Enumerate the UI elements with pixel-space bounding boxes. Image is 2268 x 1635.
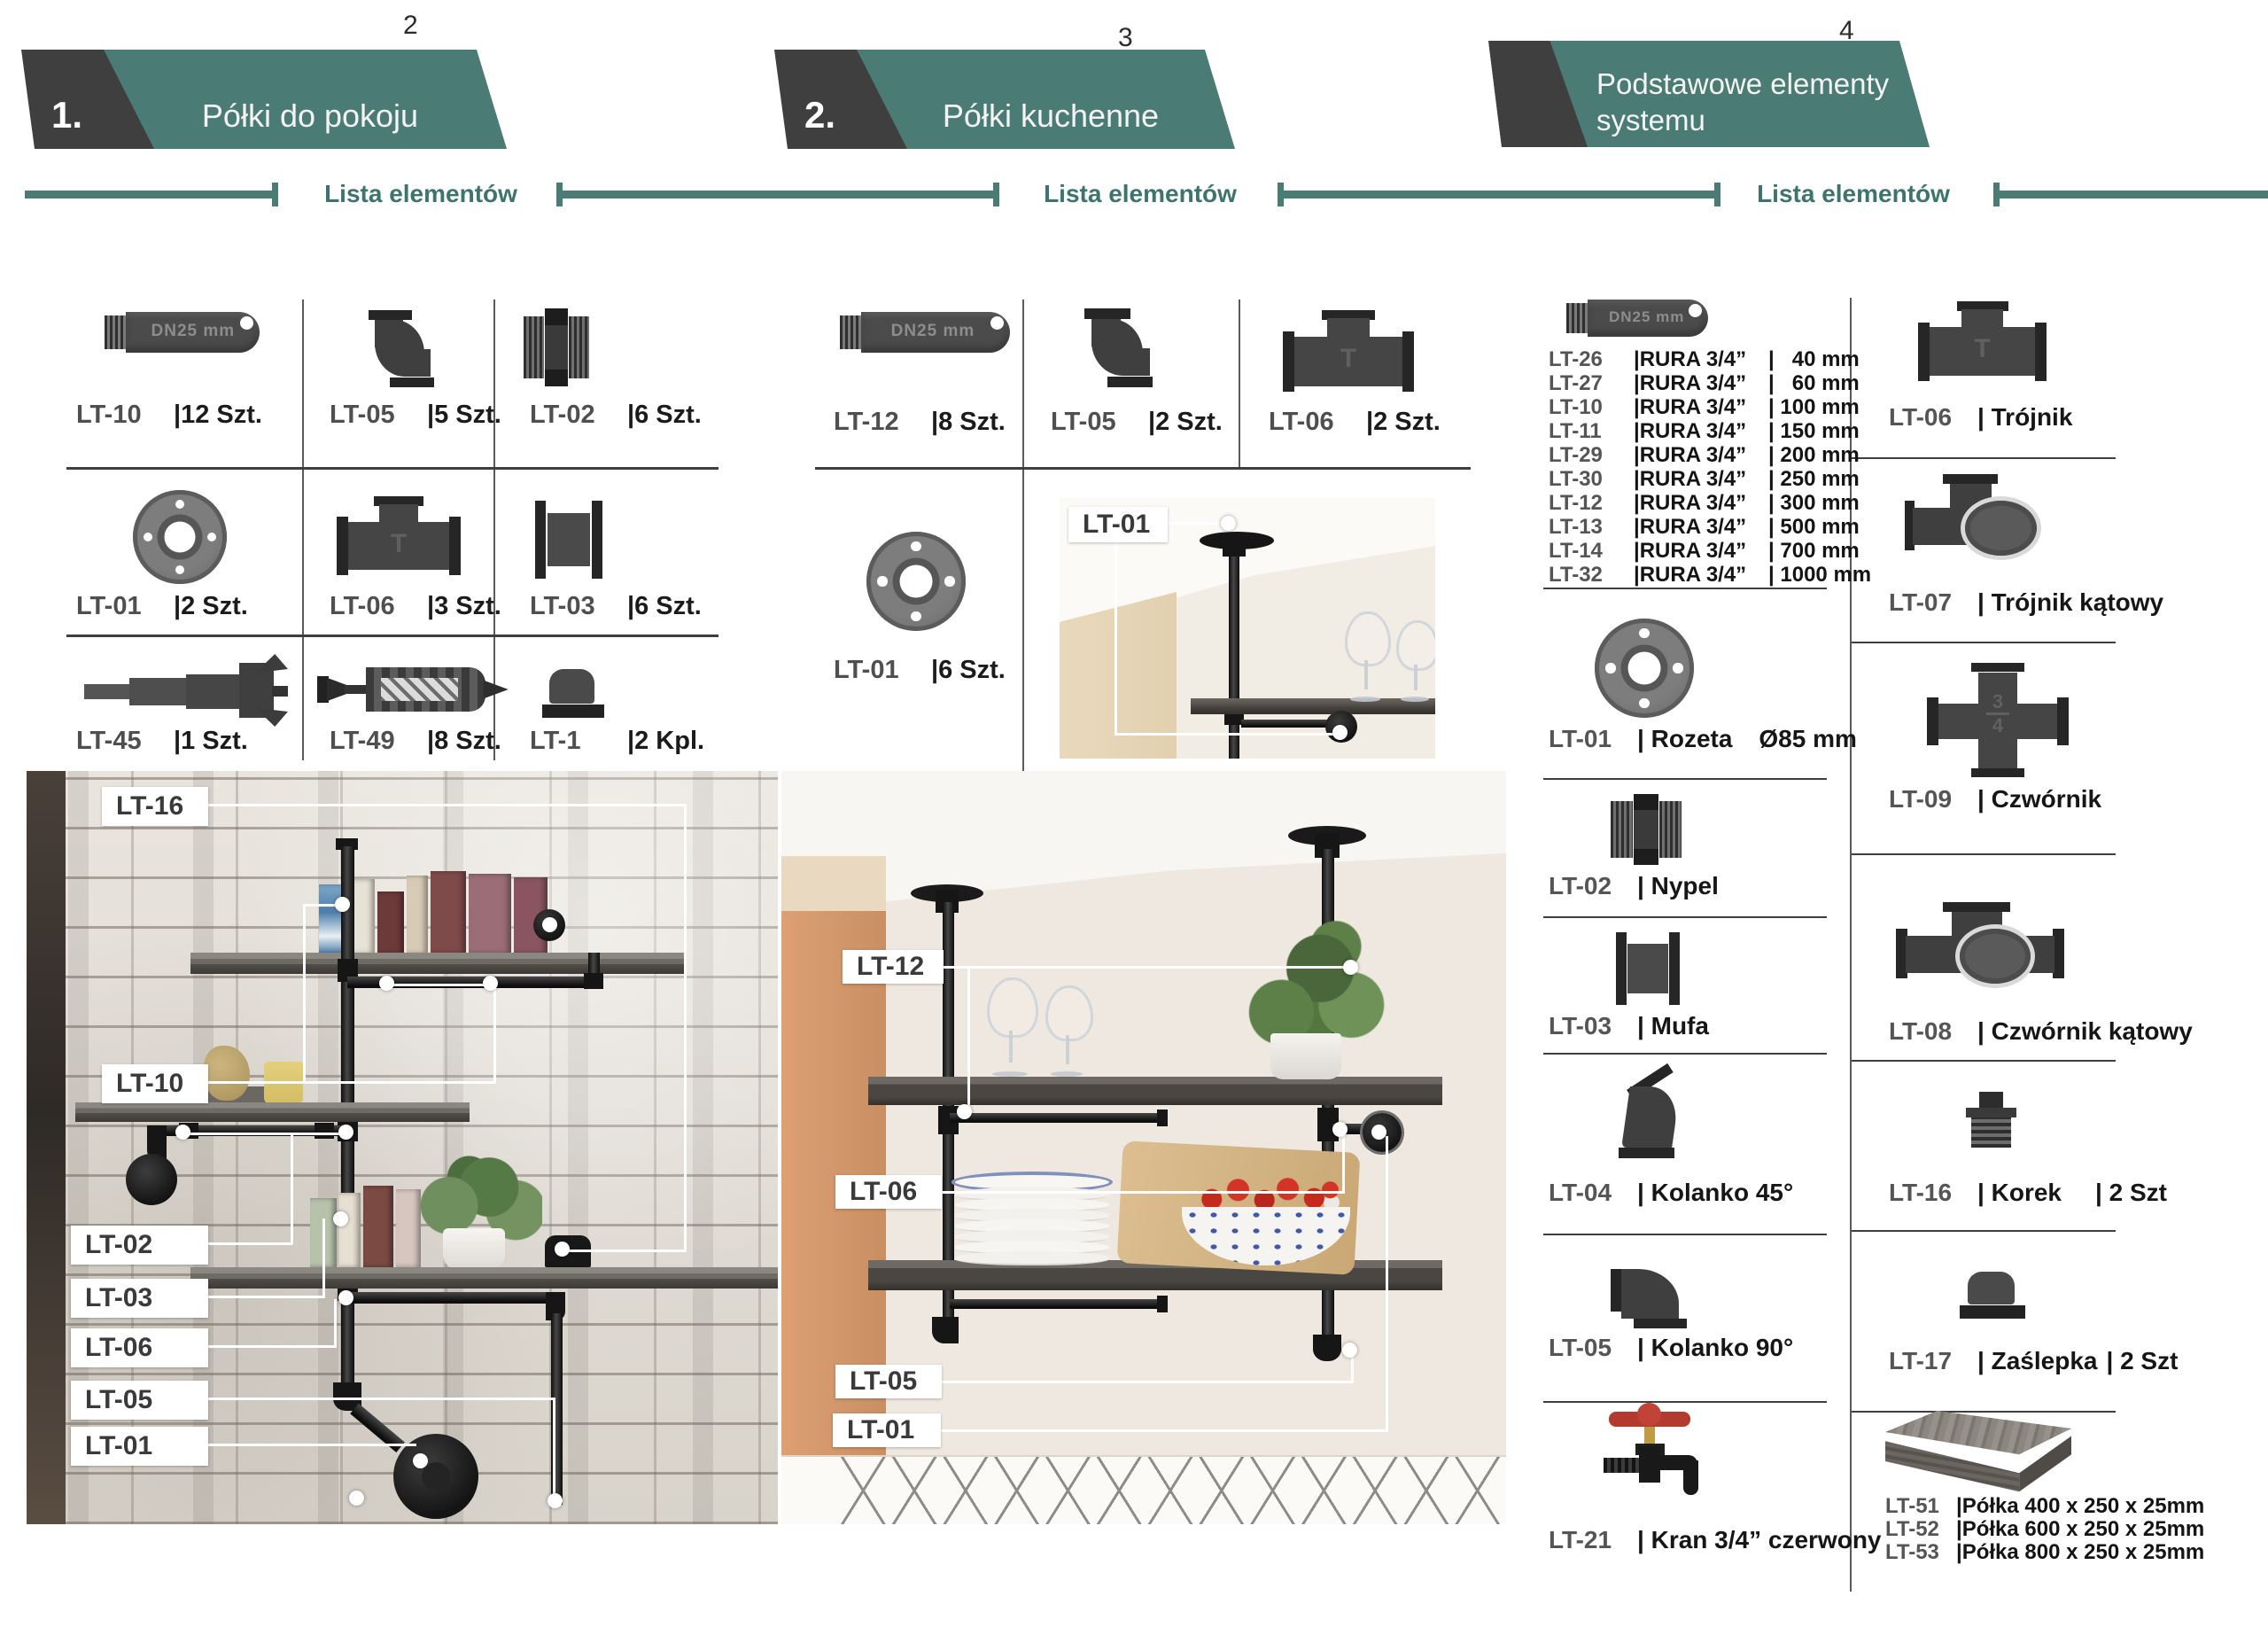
nypel-icon (1611, 794, 1682, 865)
pipe-icon: DN25 mm (840, 312, 1010, 353)
tab1-title: Półki do pokoju (154, 97, 466, 135)
czwornik-icon: 34 (1927, 660, 2069, 780)
callout-LT-05: LT-05 (835, 1365, 942, 1398)
catalog-page: 1. Półki do pokoju 2 2. Półki kuchenne 3… (0, 0, 2268, 1635)
pipe-icon: DN25 mm (105, 312, 260, 353)
tab3-title-line2: systemu (1596, 104, 1705, 136)
callout-LT-01: LT-01 (833, 1413, 941, 1447)
nypel-icon (524, 308, 589, 386)
tee-icon: T (1283, 310, 1414, 399)
part-label: LT-06|2 Szt. (1269, 408, 1441, 437)
korek-plug-icon (1953, 1092, 2029, 1152)
list-header-2: Lista elementów (1038, 180, 1242, 208)
divider-bar (1278, 191, 1720, 199)
gold-sculpture (204, 1046, 250, 1101)
divider-tick (272, 183, 278, 206)
divider-bar (1993, 191, 2268, 199)
pipe-badge-text: DN25 mm (151, 322, 236, 341)
inset-part-callout: LT-01 (1068, 507, 1168, 542)
part-label: LT-02|6 Szt. (530, 401, 702, 430)
divider-tick (1714, 183, 1720, 206)
rozeta-icon (133, 490, 227, 584)
list-header-3: Lista elementów (1751, 180, 1955, 208)
callout-LT-16: LT-16 (102, 787, 208, 826)
shelf-top (190, 953, 687, 974)
callout-LT-03: LT-03 (71, 1279, 208, 1318)
callout-LT-05: LT-05 (71, 1381, 208, 1420)
plate-stack (951, 1172, 1113, 1264)
korek-icon (542, 666, 604, 718)
tee-icon: T (337, 496, 461, 582)
part-label: LT-12|8 Szt. (834, 408, 1006, 437)
callout-LT-10: LT-10 (102, 1064, 208, 1103)
drill-bit-icon (84, 654, 288, 727)
tab2-title: Półki kuchenne (907, 97, 1194, 135)
tab1-number-box (21, 50, 154, 149)
callout-LT-02: LT-02 (71, 1226, 208, 1265)
inset-flange-hub (1223, 539, 1246, 557)
zaslepka-icon (1960, 1269, 2025, 1319)
part-label: LT-01|6 Szt. (834, 656, 1006, 685)
tab-polki-do-pokoju: 1. Półki do pokoju (21, 50, 507, 149)
herringbone-tiles (835, 1457, 1506, 1524)
part-label: LT-1|2 Kpl. (530, 727, 704, 756)
plant-pot (443, 1228, 505, 1269)
elbow-90-icon (361, 303, 439, 393)
tab3-title-line1: Podstawowe elementy (1596, 67, 1889, 100)
grid-line (1239, 300, 1240, 467)
plant-pot (1270, 1033, 1341, 1079)
mufa-icon (1616, 932, 1680, 1005)
shelf-bottom (190, 1267, 778, 1289)
tab2-number-box (774, 50, 907, 149)
grid-line (66, 635, 718, 637)
divider-bar (556, 191, 999, 199)
rozeta-icon (866, 532, 966, 631)
shelf-board-image (1885, 1411, 2071, 1495)
door-frame-edge (27, 771, 66, 1524)
wine-glass (1045, 985, 1088, 1077)
tab3-number-box (1488, 41, 1588, 147)
part-label: LT-45|1 Szt. (76, 727, 248, 756)
callout-LT-01: LT-01 (71, 1427, 208, 1466)
czwornik-katowy-icon (1896, 902, 2064, 991)
list-header-1: Lista elementów (319, 180, 523, 208)
part-label: LT-10|12 Szt. (76, 401, 262, 430)
part-label: LT-49|8 Szt. (330, 727, 501, 756)
tee-icon: T (1918, 301, 2047, 388)
wine-glass (1345, 611, 1386, 702)
part-label: LT-03|6 Szt. (530, 592, 702, 621)
grid-line (1022, 300, 1024, 808)
inset-bracket-pipe (1241, 720, 1337, 728)
wine-glass (987, 977, 1033, 1077)
page-number-4: 4 (1839, 16, 1854, 46)
rozeta-icon (1595, 619, 1694, 718)
mufa-icon (535, 501, 602, 579)
part-label: LT-06|3 Szt. (330, 592, 501, 621)
trojnik-katowy-icon (1905, 474, 2042, 563)
page-number-2: 2 (403, 11, 418, 41)
tab-polki-kuchenne: 2. Półki kuchenne (774, 50, 1235, 149)
divider-tick (993, 183, 999, 206)
grid-line (302, 300, 304, 760)
tab2-number: 2. (804, 94, 835, 136)
part-label: LT-01|2 Szt. (76, 592, 248, 621)
elbow-90-icon (1605, 1248, 1698, 1336)
elbow-45-icon (1605, 1072, 1698, 1172)
part-label: LT-05|2 Szt. (1051, 408, 1223, 437)
elbow-90-icon (1076, 301, 1158, 393)
wine-glass (1396, 620, 1433, 702)
kitchen-shelf-top (868, 1077, 1442, 1105)
callout-LT-06: LT-06 (71, 1328, 208, 1367)
part-label: LT-05|5 Szt. (330, 401, 501, 430)
inset-pipe (1229, 548, 1239, 759)
books-row (319, 870, 664, 954)
inset-photo-kitchen-flange: LT-01 (1060, 498, 1435, 759)
screw-dowel-icon (317, 660, 510, 719)
divider-bar (25, 191, 278, 199)
pipe-icon: DN25 mm (1566, 300, 1708, 337)
callout-LT-06: LT-06 (835, 1175, 942, 1209)
shelf-middle (75, 1102, 470, 1122)
page-number-3: 3 (1118, 23, 1133, 53)
tab3-title: Podstawowe elementy systemu (1596, 66, 1903, 138)
photo-room-shelves: LT-16 LT-10 LT-02 LT-03 LT-06 LT-05 LT-0… (27, 771, 778, 1524)
photo-kitchen-shelves: LT-12 LT-06 LT-05 LT-01 (781, 771, 1506, 1524)
tab-podstawowe-elementy: Podstawowe elementy systemu (1488, 41, 1930, 147)
ceiling (781, 771, 1506, 913)
tab1-number: 1. (51, 94, 82, 136)
wall-flange (126, 1154, 177, 1205)
red-tap-icon (1599, 1398, 1719, 1512)
callout-LT-12: LT-12 (843, 950, 944, 984)
grid-line (66, 467, 718, 470)
grid-line (815, 467, 1471, 470)
